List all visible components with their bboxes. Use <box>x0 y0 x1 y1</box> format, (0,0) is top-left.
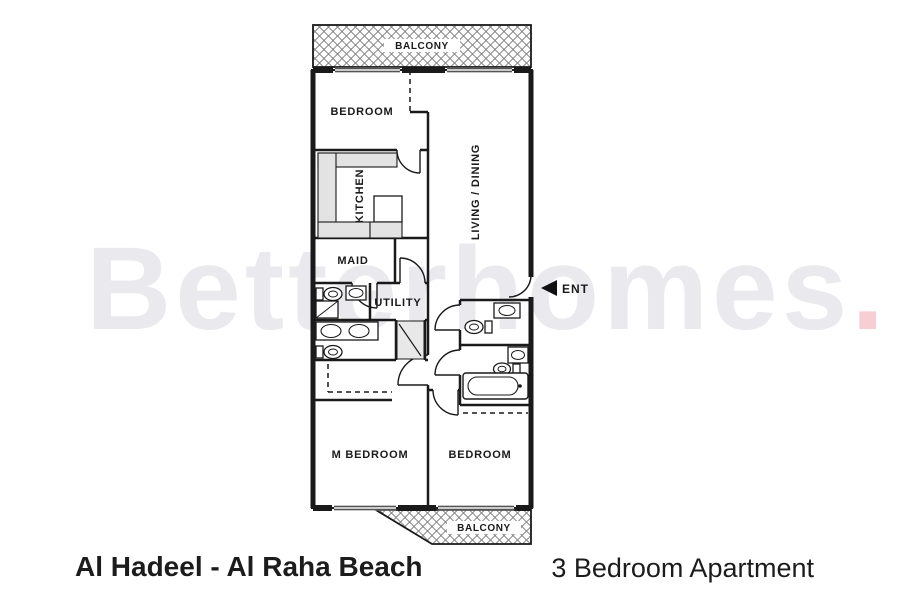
label-m-bedroom: M BEDROOM <box>332 449 409 461</box>
sink-maid-bath <box>346 286 366 300</box>
label-utility: UTILITY <box>374 297 421 309</box>
entrance-marker: ENT <box>541 280 589 296</box>
shaft <box>397 321 424 359</box>
label-bedroom-top: BEDROOM <box>330 106 393 118</box>
floorplan-drawing: BALCONY BALCONY <box>0 0 900 600</box>
toilet-maid-bath <box>316 288 342 301</box>
window-top-bedroom <box>335 68 400 72</box>
balcony-bottom-label: BALCONY <box>457 523 511 534</box>
label-kitchen: KITCHEN <box>354 169 366 224</box>
door-bedroom-top <box>397 150 420 173</box>
kitchen-appliance <box>374 196 402 222</box>
outer-walls-horizontal <box>311 70 533 508</box>
door-bedroom-bottom <box>433 390 458 415</box>
balcony-bottom: BALCONY <box>376 510 531 544</box>
wall-bedroomtop-living <box>410 112 428 238</box>
closet-m-bedroom <box>328 364 392 392</box>
toilet-guest-bath <box>465 321 492 334</box>
balcony-door-bottom <box>438 506 514 510</box>
balcony-top-label: BALCONY <box>395 41 449 52</box>
kitchen-counter-corner <box>370 222 402 238</box>
entrance-arrow-icon <box>541 280 557 296</box>
door-ensuite-bath <box>435 350 460 375</box>
double-sink-master-bath <box>316 322 378 340</box>
floorplan-page: Betterhomes. BALCONY BALCONY <box>0 0 900 600</box>
label-maid: MAID <box>337 255 368 267</box>
sink-ensuite <box>508 347 528 363</box>
shower-maid-bath <box>316 301 338 318</box>
door-guest-bath <box>435 305 460 330</box>
balcony-top: BALCONY <box>313 25 531 67</box>
property-title: Al Hadeel - Al Raha Beach <box>75 551 423 583</box>
kitchen-counter-bottom <box>318 222 370 238</box>
bathtub-ensuite <box>463 373 528 399</box>
door-entrance <box>509 275 531 297</box>
label-living-dining: LIVING / DINING <box>470 144 482 240</box>
sink-guest-bath <box>494 303 520 318</box>
unit-type-title: 3 Bedroom Apartment <box>551 553 814 584</box>
window-top-living <box>447 68 512 72</box>
entrance-label: ENT <box>562 282 589 296</box>
toilet-master-bath <box>316 346 342 359</box>
window-m-bedroom <box>334 506 396 510</box>
label-bedroom-bottom: BEDROOM <box>448 449 511 461</box>
door-utility <box>400 258 425 283</box>
